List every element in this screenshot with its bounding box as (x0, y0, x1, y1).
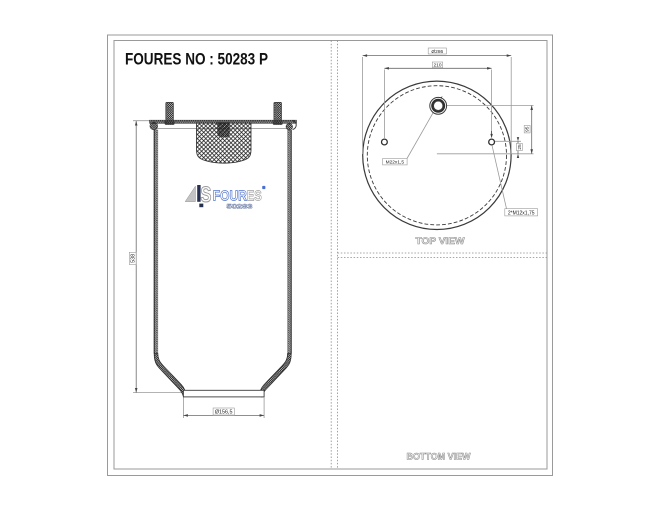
svg-text:FOURES NO : 50283 P: FOURES NO : 50283 P (125, 51, 268, 69)
svg-text:Ø286: Ø286 (431, 49, 443, 55)
svg-text:50283: 50283 (227, 204, 253, 211)
svg-text:FOUR: FOUR (213, 188, 247, 204)
svg-text:TOP VIEW: TOP VIEW (416, 236, 466, 246)
svg-text:S: S (200, 182, 211, 207)
svg-text:ES: ES (247, 188, 262, 204)
svg-text:M22x1,5: M22x1,5 (386, 160, 405, 166)
svg-text:95: 95 (525, 126, 531, 132)
svg-text:2*M12x1,75: 2*M12x1,75 (508, 210, 535, 216)
svg-text:BOTTOM VIEW: BOTTOM VIEW (407, 452, 471, 462)
svg-text:Ø156,5: Ø156,5 (215, 409, 233, 415)
svg-text:25: 25 (517, 144, 523, 150)
svg-text:538: 538 (131, 254, 137, 263)
svg-text:210: 210 (433, 63, 441, 69)
